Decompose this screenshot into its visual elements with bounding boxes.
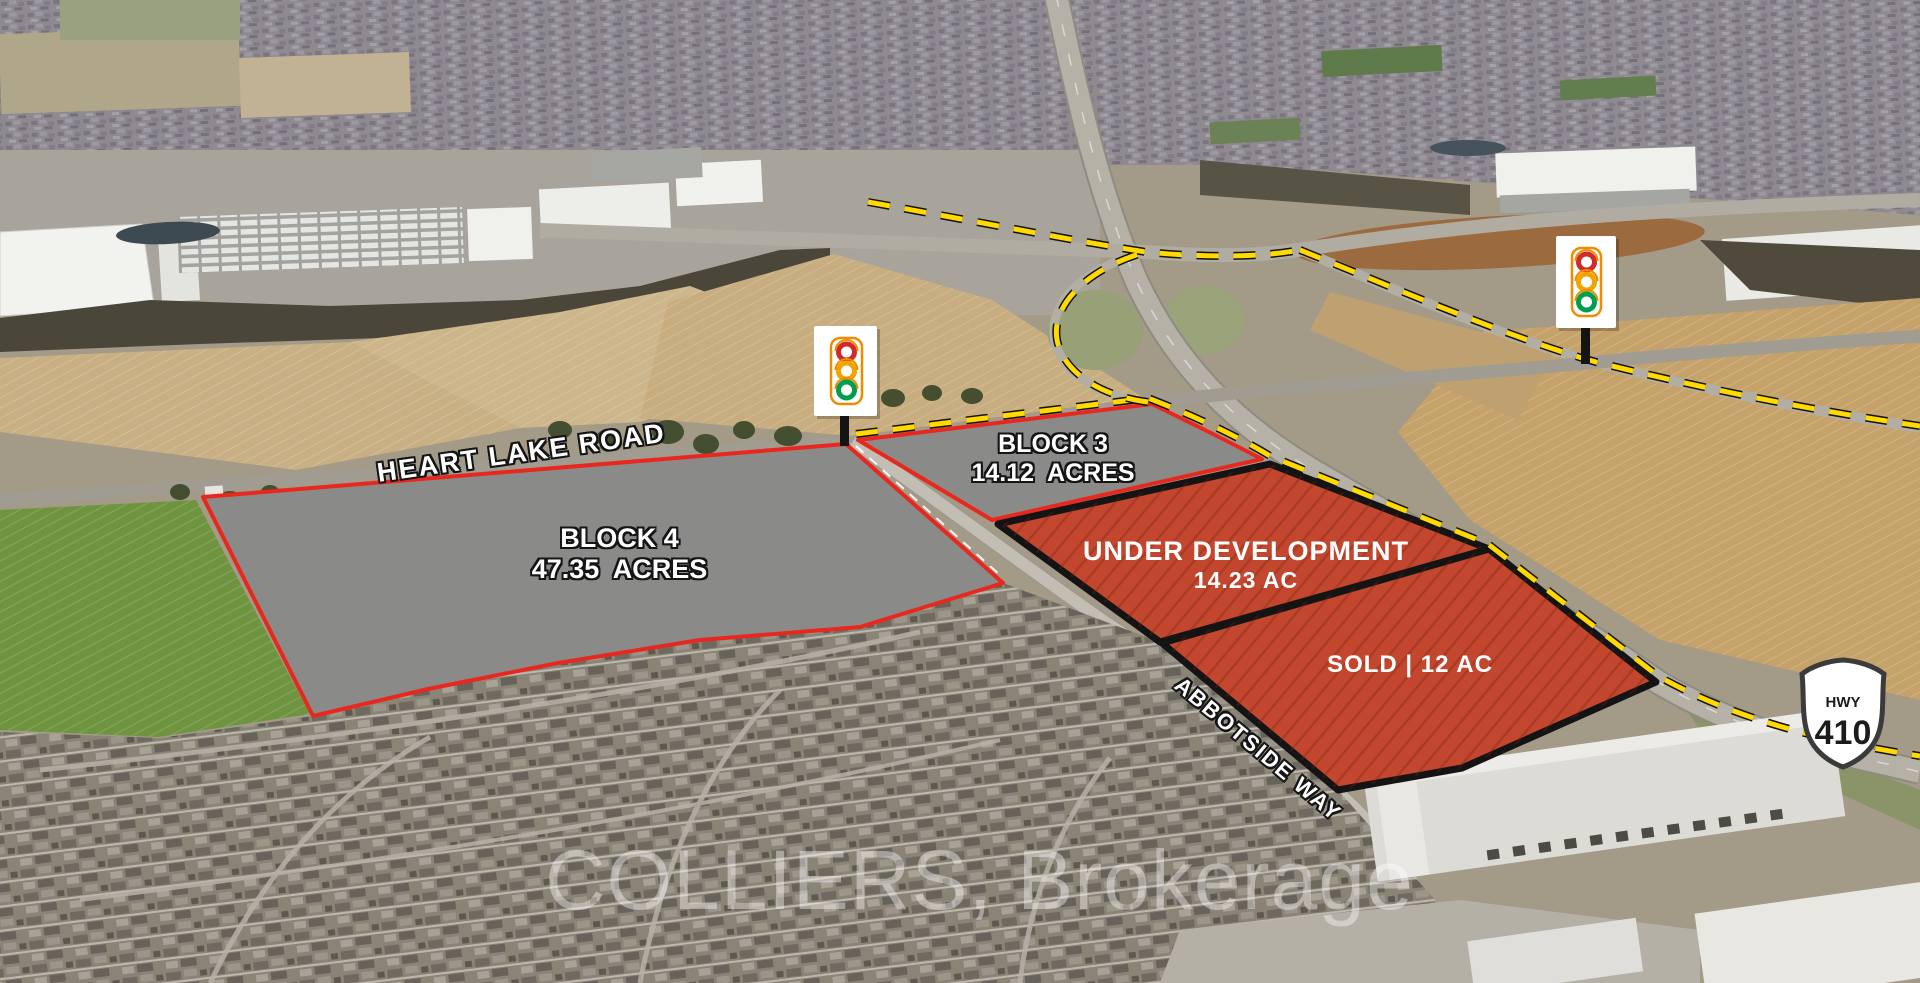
hwy-shield-number: 410 — [1815, 714, 1872, 752]
parcel-name: BLOCK 4 — [512, 523, 727, 554]
parcel-label-block-4: BLOCK 4 47.35 ACRES — [512, 523, 727, 586]
aerial-site-plan: HWY 410 HEART LAKE ROAD BLOCK 4 47.35 AC… — [0, 0, 1920, 983]
parcel-name: UNDER DEVELOPMENT — [1078, 536, 1414, 567]
parcel-area: 14.23 AC — [1078, 567, 1414, 594]
hwy-shield-label: HWY — [1826, 694, 1861, 711]
parcel-area: 47.35 ACRES — [512, 554, 727, 585]
pond — [1430, 140, 1506, 156]
parcel-area: 14.12 ACRES — [948, 459, 1158, 488]
parcel-name: BLOCK 3 — [948, 430, 1158, 459]
signal-pole — [1581, 326, 1590, 364]
signal-pole — [840, 412, 849, 446]
parcel-label-block-3: BLOCK 3 14.12 ACRES — [948, 430, 1158, 488]
parcel-label-under-development: UNDER DEVELOPMENT 14.23 AC — [1078, 536, 1414, 594]
colliers-brokerage-watermark: COLLIERS, Brokerage — [545, 832, 1375, 929]
parcel-label-sold: SOLD | 12 AC — [1325, 651, 1495, 679]
